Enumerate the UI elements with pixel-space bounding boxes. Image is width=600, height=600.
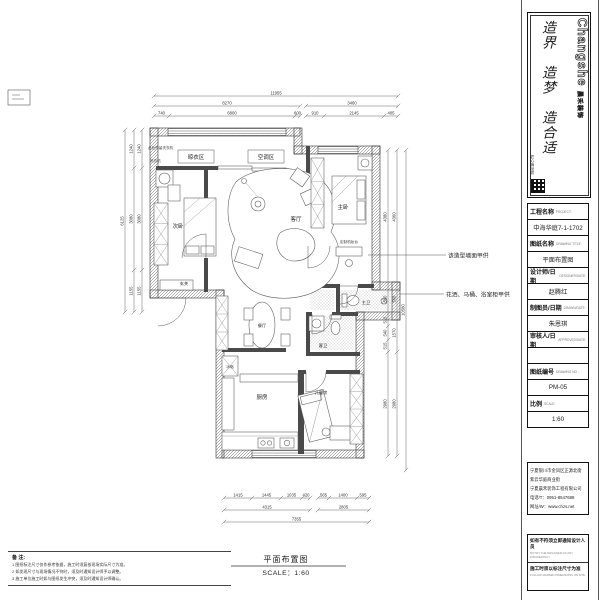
dimension-chain: 124030801155	[128, 128, 136, 314]
qr-code-icon	[531, 179, 545, 193]
remark-item-3: 3 施工单位施工时如与图纸发生冲突，须及时通知设计师确认。	[12, 575, 227, 582]
dimension-chain: 3460	[304, 100, 400, 108]
svg-text:2145: 2145	[349, 110, 359, 115]
label-master-bedroom: 主卧	[337, 203, 349, 211]
company-info-box: 宁夏银川市金凤区正源北街 紫云华庭商业街 宁夏晨禾装饰工程有限公司 电话/T：0…	[527, 462, 589, 515]
wardrobe	[350, 374, 363, 444]
svg-text:1240: 1240	[136, 144, 141, 154]
field-draftsman-label: 制图员/日期DRAWN/DATE:	[527, 299, 589, 316]
field-designer-value: 赵腾红	[527, 283, 589, 300]
brand-column: Changshe 晨禾装饰	[575, 18, 589, 188]
svg-text:1035: 1035	[287, 492, 297, 497]
svg-text:4380: 4380	[382, 212, 387, 222]
plan-scale: SCALE：1:60	[262, 570, 309, 577]
svg-text:3080: 3080	[128, 214, 133, 224]
field-scale-label: 比例SCALE:	[527, 395, 589, 412]
dimension-chain: 4315	[222, 504, 312, 512]
brand-slogan: 造界 造梦 造合适	[541, 20, 555, 155]
title-block-strip: Changshe 晨禾装饰 造界 造梦 造合适 匠心铸品质 工程名称PROJEC…	[521, 0, 599, 600]
label-living-room: 客厅	[290, 215, 302, 223]
label-dining: 餐厅	[258, 322, 266, 329]
wardrobe	[154, 203, 168, 265]
field-approver-label: 审核人/日期APPROVED/DATE:	[527, 331, 589, 348]
svg-text:565: 565	[320, 492, 328, 497]
label-entry: 玄关	[180, 280, 188, 287]
dimension-chain: 8270	[152, 100, 302, 108]
company-website: 网址/W：www.chzs.net	[530, 502, 586, 511]
label-ac-area: 空调区	[258, 153, 275, 161]
svg-text:1155: 1155	[128, 286, 133, 296]
company-name: 宁夏晨禾装饰工程有限公司	[530, 484, 586, 493]
svg-text:405: 405	[388, 110, 396, 115]
svg-text:600: 600	[294, 110, 302, 115]
svg-text:2980: 2980	[391, 399, 396, 409]
field-draftsman-value: 朱恩琪	[527, 315, 589, 332]
dimension-chain: 11955	[152, 90, 400, 98]
company-phone: 电话/T：0951-8547688	[530, 493, 586, 502]
label-dresser: 定制梳妆台	[340, 239, 358, 244]
svg-text:1570: 1570	[391, 328, 396, 338]
svg-text:6125: 6125	[119, 216, 124, 226]
field-drawing-title-value: 平面布置图	[527, 251, 589, 268]
svg-text:595: 595	[360, 492, 368, 497]
field-drawing-no-label: 图纸编号DRAWING NO.:	[527, 363, 589, 380]
svg-text:515: 515	[382, 342, 387, 350]
dimension-chain: 7355	[222, 516, 371, 524]
annotation-bath-fixtures: 花洒、马桶、浴室柜甲供	[446, 291, 510, 299]
floor-plan-canvas: 晾衣区 空调区 次卧 客厅 主卧 定制梳妆台 主卫 客卫 儿童房 餐厅 厨房 玄…	[0, 0, 600, 600]
field-scale-value: 1:60	[527, 411, 589, 428]
svg-text:420: 420	[303, 492, 311, 497]
svg-text:3080: 3080	[136, 214, 141, 224]
label-master-bath: 主卫	[362, 299, 370, 305]
label-fridge: 冰箱	[226, 364, 234, 369]
warning-2: 施工时须以标注尺寸为准 FOLLOW MARKED DIMENSIONS ON …	[528, 563, 588, 580]
svg-text:3460: 3460	[347, 100, 357, 105]
warning-1: 如有不符须立即通知设计人员 NOTIFY THE DESIGNER OF ANY…	[528, 535, 588, 563]
svg-text:560: 560	[382, 295, 387, 303]
svg-text:7355: 7355	[292, 516, 302, 521]
brand-seal-text: 匠心铸品质	[531, 155, 536, 175]
dimension-chain: 2805	[316, 504, 371, 512]
dimension-chain: 124030801155	[136, 128, 144, 314]
svg-text:540: 540	[382, 329, 387, 337]
remarks-heading: 备 注:	[12, 554, 227, 561]
company-address-1: 宁夏银川市金凤区正源北街	[530, 466, 586, 475]
svg-text:1155: 1155	[136, 286, 141, 296]
field-drawing-title-label: 图纸名称DRAWING TITLE:	[527, 235, 589, 252]
company-address-2: 紫云华庭商业街	[530, 475, 586, 484]
svg-text:1445: 1445	[262, 492, 272, 497]
dimension-chain: 10580	[400, 148, 408, 472]
brand-cn: 晨禾装饰	[576, 91, 582, 119]
brand-en: Changshe	[575, 18, 589, 86]
field-approver-value	[527, 347, 589, 364]
wardrobe	[311, 158, 324, 228]
svg-text:4360: 4360	[391, 212, 396, 222]
svg-text:740: 740	[158, 110, 166, 115]
label-washer: 洗衣机	[150, 158, 161, 163]
svg-text:515: 515	[382, 316, 387, 324]
dimension-chain: 9102145405	[304, 110, 400, 118]
legend-stamp	[8, 90, 30, 105]
label-second-bedroom: 次卧	[172, 222, 184, 230]
plan-title: 平面布置图	[264, 554, 309, 564]
field-drawing-no-value: PM-05	[527, 379, 589, 396]
dimension-chain: 141514451035420	[222, 492, 312, 500]
wardrobe	[216, 296, 228, 350]
drawing-sheet: 晾衣区 空调区 次卧 客厅 主卧 定制梳妆台 主卫 客卫 儿童房 餐厅 厨房 玄…	[0, 0, 600, 600]
svg-text:1240: 1240	[128, 144, 133, 154]
svg-text:10580: 10580	[400, 304, 405, 316]
remark-item-2: 2 如发现尺寸与现场情况不符时，须及时通知设计师予以调整。	[12, 568, 227, 575]
label-kitchen: 厨房	[256, 393, 268, 401]
label-guest-bath: 客卫	[319, 342, 327, 349]
company-logo-box: Changshe 晨禾装饰 造界 造梦 造合适 匠心铸品质	[527, 12, 591, 198]
label-drying-area: 晾衣区	[188, 153, 205, 161]
remarks-block: 备 注: 1 图纸标注尺寸仅作参考依据，施工时须复核现场实际尺寸为准。 2 如发…	[8, 551, 231, 586]
svg-text:2980: 2980	[382, 399, 387, 409]
label-washer-reserve: 此处预留洗衣机	[148, 145, 174, 150]
svg-text:6800: 6800	[227, 110, 237, 115]
field-designer-label: 设计师/日期DESIGNER/DATE:	[527, 267, 589, 284]
annotation-feature-wall: 该造型墙面甲供	[448, 252, 489, 260]
svg-text:910: 910	[312, 110, 320, 115]
dimension-chain: 7406800600	[152, 110, 302, 118]
svg-text:8270: 8270	[222, 100, 232, 105]
svg-text:4315: 4315	[262, 504, 272, 509]
title-block-fields: 工程名称PROJECT: 中海华庭7-1-1702 图纸名称DRAWING TI…	[527, 204, 589, 428]
remark-item-1: 1 图纸标注尺寸仅作参考依据，施工时须复核现场实际尺寸为准。	[12, 561, 227, 568]
svg-text:560: 560	[391, 295, 396, 303]
warning-box: 如有不符须立即通知设计人员 NOTIFY THE DESIGNER OF ANY…	[527, 534, 589, 591]
dimension-chain: 6125	[119, 128, 127, 314]
svg-text:2805: 2805	[339, 504, 349, 509]
svg-text:1415: 1415	[233, 492, 243, 497]
label-kids-room: 儿童房	[315, 389, 328, 396]
field-project-label: 工程名称PROJECT:	[527, 203, 589, 220]
dimension-chain: 5651400595	[316, 492, 371, 500]
field-project-value: 中海华庭7-1-1702	[527, 219, 589, 236]
svg-text:1400: 1400	[338, 492, 348, 497]
svg-text:11955: 11955	[270, 90, 282, 95]
